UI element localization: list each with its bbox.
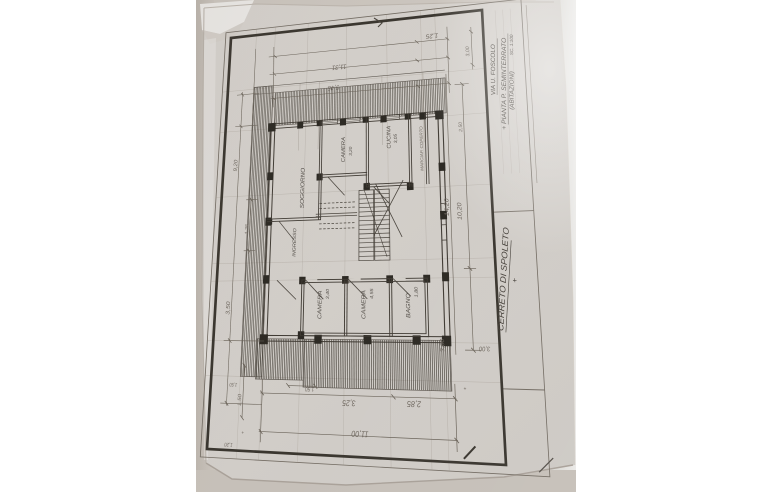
svg-text:3,00: 3,00	[478, 345, 490, 353]
svg-text:VIA U. FOSCOLO: VIA U. FOSCOLO	[490, 44, 497, 95]
svg-text:9,20: 9,20	[233, 159, 239, 172]
svg-text:SOGGIORNO: SOGGIORNO	[300, 167, 307, 208]
svg-text:3,40: 3,40	[325, 289, 331, 300]
svg-text:11,31: 11,31	[332, 62, 346, 71]
svg-text:3,20: 3,20	[348, 146, 353, 156]
svg-text:1,50: 1,50	[305, 385, 314, 392]
svg-text:3,00: 3,00	[465, 46, 471, 57]
svg-text:14,20: 14,20	[444, 198, 451, 216]
svg-text:1,25: 1,25	[244, 224, 250, 235]
svg-text:1,25: 1,25	[425, 31, 438, 39]
svg-text:9,46: 9,46	[327, 83, 339, 91]
svg-text:2,50: 2,50	[458, 122, 464, 133]
svg-text:INGRESSO: INGRESSO	[292, 228, 298, 257]
svg-text:3,05: 3,05	[393, 133, 398, 143]
svg-text:CAMERA: CAMERA	[361, 290, 367, 319]
svg-text:CAMERA: CAMERA	[341, 136, 347, 162]
svg-text:1,50: 1,50	[237, 393, 243, 406]
svg-text:+: +	[241, 431, 245, 435]
svg-text:+ PIANTA P. SEMINTERRATO: + PIANTA P. SEMINTERRATO	[501, 38, 508, 130]
svg-text:BAGNO: BAGNO	[405, 293, 412, 318]
svg-text:+: +	[510, 277, 519, 282]
svg-text:2,85: 2,85	[406, 399, 422, 409]
svg-text:1,80: 1,80	[414, 287, 420, 298]
svg-text:11,00: 11,00	[351, 429, 369, 440]
svg-text:1,20: 1,20	[224, 441, 233, 448]
svg-text:SC. 1:100: SC. 1:100	[509, 34, 514, 55]
svg-text:CAMERA: CAMERA	[317, 291, 324, 319]
svg-text:+: +	[463, 387, 469, 390]
svg-text:3,00: 3,00	[439, 338, 446, 352]
svg-text:CUCINA: CUCINA	[387, 125, 393, 148]
svg-text:10,20: 10,20	[456, 202, 463, 220]
svg-text:1,50: 1,50	[229, 382, 237, 388]
svg-text:4,55: 4,55	[369, 288, 375, 299]
svg-text:3,50: 3,50	[225, 301, 232, 315]
svg-text:3,25: 3,25	[342, 398, 356, 408]
svg-text:(ABITAZIONI): (ABITAZIONI)	[509, 71, 516, 110]
svg-text:CERRETO DI SPOLETO: CERRETO DI SPOLETO	[496, 227, 511, 332]
